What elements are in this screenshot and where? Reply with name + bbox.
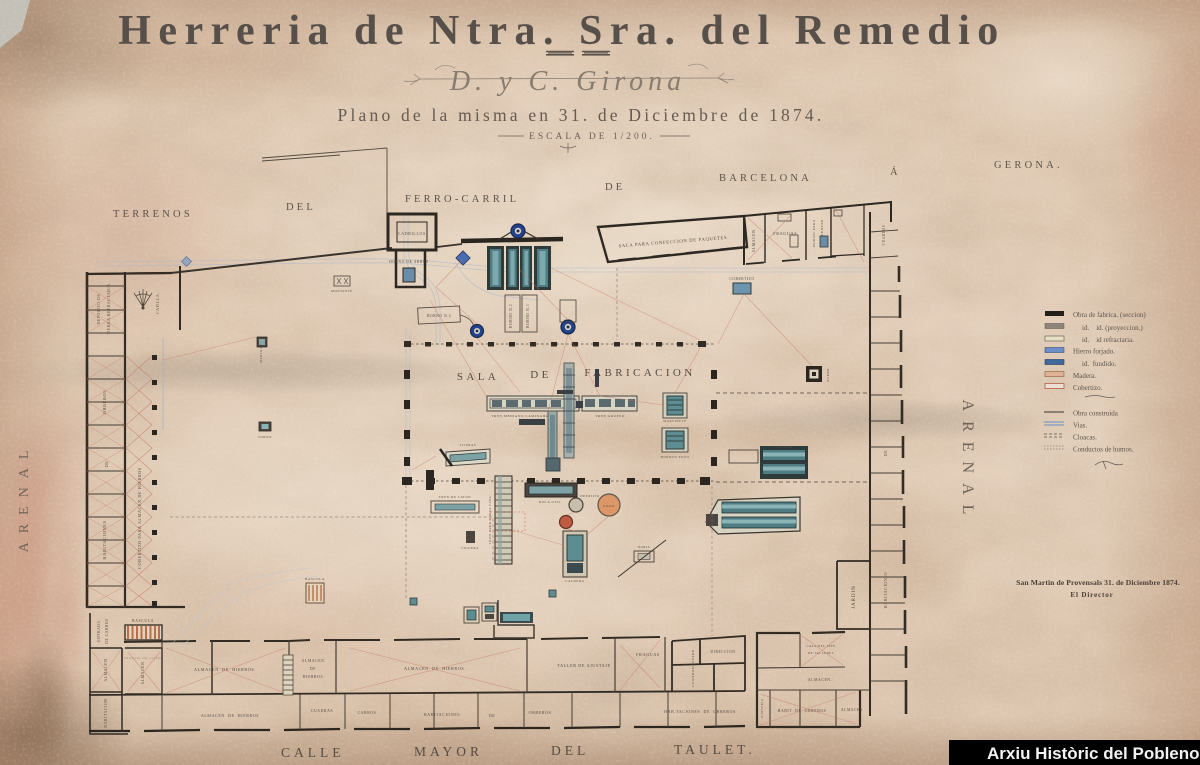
svg-text:HAB.TACIONES DE OBREROS: HAB.TACIONES DE OBREROS — [664, 709, 736, 714]
svg-text:HORNO N.3: HORNO N.3 — [526, 304, 530, 328]
svg-text:CALDERA: CALDERA — [565, 579, 584, 583]
svg-text:FERRO-CARRIL: FERRO-CARRIL — [405, 194, 519, 205]
svg-text:TORNO: TORNO — [258, 435, 272, 439]
svg-text:ALMACEN DE HIERROS.: ALMACEN DE HIERROS. — [404, 666, 466, 671]
svg-text:JARDIN: JARDIN — [852, 585, 857, 609]
svg-text:Á: Á — [890, 166, 901, 178]
svg-text:COBERTIZO PARA ALMACEN DE HIER: COBERTIZO PARA ALMACEN DE HIERROS — [137, 467, 142, 569]
svg-text:VIGUERA: VIGUERA — [461, 546, 479, 550]
svg-text:OBREROS: OBREROS — [529, 710, 552, 715]
svg-text:COBERTIZO: COBERTIZO — [729, 277, 754, 281]
svg-text:CARROS: CARROS — [358, 711, 377, 715]
svg-text:TORRE: TORRE — [826, 368, 830, 382]
svg-text:Hierro forjado.: Hierro forjado. — [1073, 348, 1115, 356]
svg-text:HORNOS POZO: HORNOS POZO — [661, 455, 690, 459]
svg-text:DEPOSITO: DEPOSITO — [580, 494, 599, 498]
svg-text:Obra de fabrica. (seccion): Obra de fabrica. (seccion) — [1073, 311, 1146, 319]
svg-text:FABRICACION: FABRICACION — [584, 367, 695, 379]
svg-text:Vias.: Vias. — [1073, 422, 1087, 430]
svg-text:ESCALA DE 1/200.: ESCALA DE 1/200. — [529, 132, 655, 142]
svg-text:El Director: El Director — [1070, 591, 1113, 599]
svg-text:MAYOR: MAYOR — [414, 744, 483, 759]
svg-text:Cloacas.: Cloacas. — [1073, 434, 1097, 442]
svg-text:CUADRAS: CUADRAS — [311, 709, 333, 713]
svg-text:DIRECCION: DIRECCION — [711, 650, 736, 654]
svg-text:CALLE: CALLE — [281, 745, 345, 760]
svg-text:ARENAL: ARENAL — [959, 400, 976, 525]
svg-text:id. id. (proyeccion.): id. id. (proyeccion.) — [1082, 324, 1143, 332]
svg-text:DE TALLERES: DE TALLERES — [808, 651, 834, 655]
svg-text:TREN GRUESO: TREN GRUESO — [595, 414, 625, 418]
svg-text:CAPILLA.: CAPILLA. — [156, 292, 160, 314]
svg-text:TREN DE LATON: TREN DE LATON — [439, 495, 471, 499]
svg-text:ENTRADA: ENTRADA — [97, 620, 101, 641]
svg-text:ARENAL: ARENAL — [17, 442, 32, 553]
svg-text:Obra construida: Obra construida — [1073, 410, 1119, 418]
svg-text:San Martin de Provensals 31. d: San Martin de Provensals 31. de Diciembr… — [1016, 578, 1180, 587]
svg-text:ALMACEN.: ALMACEN. — [808, 678, 833, 682]
svg-text:RIO A UTIL: RIO A UTIL — [539, 500, 561, 504]
svg-text:CUARTOS: CUARTOS — [882, 225, 886, 246]
svg-text:ALMACEN DE HIERROS: ALMACEN DE HIERROS — [201, 713, 259, 718]
svg-text:HORNO N.2: HORNO N.2 — [509, 304, 513, 328]
svg-text:HORNO DE ARROZ: HORNO DE ARROZ — [389, 260, 429, 264]
svg-text:D. y C. Girona: D. y C. Girona — [449, 66, 686, 97]
svg-text:HIERROS: HIERROS — [303, 675, 323, 679]
svg-text:LADRILLOS: LADRILLOS — [398, 231, 426, 236]
svg-text:DE: DE — [310, 667, 316, 671]
svg-text:DEL: DEL — [551, 743, 589, 758]
svg-text:ALMACEN DE HIERROS.: ALMACEN DE HIERROS. — [194, 667, 256, 672]
svg-text:HABITACIONES: HABITACIONES — [424, 712, 460, 717]
svg-text:HORNO PARA: HORNO PARA — [812, 219, 816, 247]
svg-text:Cobertizo.: Cobertizo. — [1073, 384, 1103, 392]
svg-text:GERONA.: GERONA. — [994, 160, 1063, 171]
svg-text:ALMACEN: ALMACEN — [841, 708, 863, 712]
svg-text:Herreria de Ntra. Sra. del Rem: Herreria de Ntra. Sra. del Remedio — [118, 8, 1006, 54]
svg-text:CONTRAMAESTRE: CONTRAMAESTRE — [691, 649, 695, 687]
svg-text:TAULET.: TAULET. — [674, 742, 756, 757]
svg-text:TREN MEDIANO LAMINADO: TREN MEDIANO LAMINADO — [491, 414, 549, 418]
svg-text:DE: DE — [530, 369, 551, 381]
svg-text:Arxiu Històric del Poblenou: Arxiu Històric del Poblenou — [987, 744, 1200, 763]
svg-text:PORTERIA: PORTERIA — [760, 698, 764, 718]
svg-text:ALMACEN: ALMACEN — [302, 659, 325, 663]
svg-text:ALMACEN: ALMACEN — [752, 230, 756, 253]
svg-text:HABITACION: HABITACION — [104, 698, 108, 727]
svg-text:DE: DE — [605, 182, 625, 193]
svg-text:HABITACIONES: HABITACIONES — [883, 572, 888, 608]
svg-text:Plano de la misma en 31. de Di: Plano de la misma en 31. de Diciembre de… — [338, 105, 825, 125]
svg-text:id. id refractaria.: id. id refractaria. — [1082, 336, 1134, 344]
svg-text:BASCULA: BASCULA — [132, 619, 154, 623]
svg-text:DE: DE — [883, 450, 888, 457]
svg-text:TERRENOS: TERRENOS — [113, 209, 193, 220]
svg-text:MONTANTE: MONTANTE — [331, 289, 352, 293]
svg-text:TIERRA REFRACTARIA: TIERRA REFRACTARIA — [107, 283, 111, 334]
svg-text:DEL: DEL — [286, 202, 316, 213]
svg-text:DE: DE — [104, 460, 109, 467]
svg-text:DEPOSITO DE: DEPOSITO DE — [97, 293, 101, 324]
svg-text:CASA DEL JEFE: CASA DEL JEFE — [806, 644, 835, 648]
svg-text:SALA: SALA — [457, 371, 499, 383]
svg-text:DE CARROS: DE CARROS — [105, 618, 109, 643]
svg-text:id. fundido.: id. fundido. — [1082, 360, 1116, 368]
svg-text:MARTILLO: MARTILLO — [260, 343, 263, 362]
svg-text:DE: DE — [489, 713, 496, 718]
svg-text:MARTINETE: MARTINETE — [663, 419, 687, 423]
svg-text:TALLER DE AJUSTAJE: TALLER DE AJUSTAJE — [557, 663, 610, 668]
svg-text:TIJERAS: TIJERAS — [460, 443, 477, 447]
svg-text:Conductos de humos.: Conductos de humos. — [1073, 446, 1134, 454]
svg-text:BARCELONA: BARCELONA — [719, 173, 812, 184]
svg-text:CALDERA: CALDERA — [775, 446, 792, 449]
svg-text:OBREROS: OBREROS — [102, 390, 107, 414]
svg-text:Madera.: Madera. — [1073, 372, 1096, 380]
svg-text:POZO: POZO — [603, 504, 614, 508]
svg-text:NORIA: NORIA — [638, 545, 651, 549]
svg-text:DEPOSITO DEL ACEITE: DEPOSITO DEL ACEITE — [124, 657, 161, 660]
